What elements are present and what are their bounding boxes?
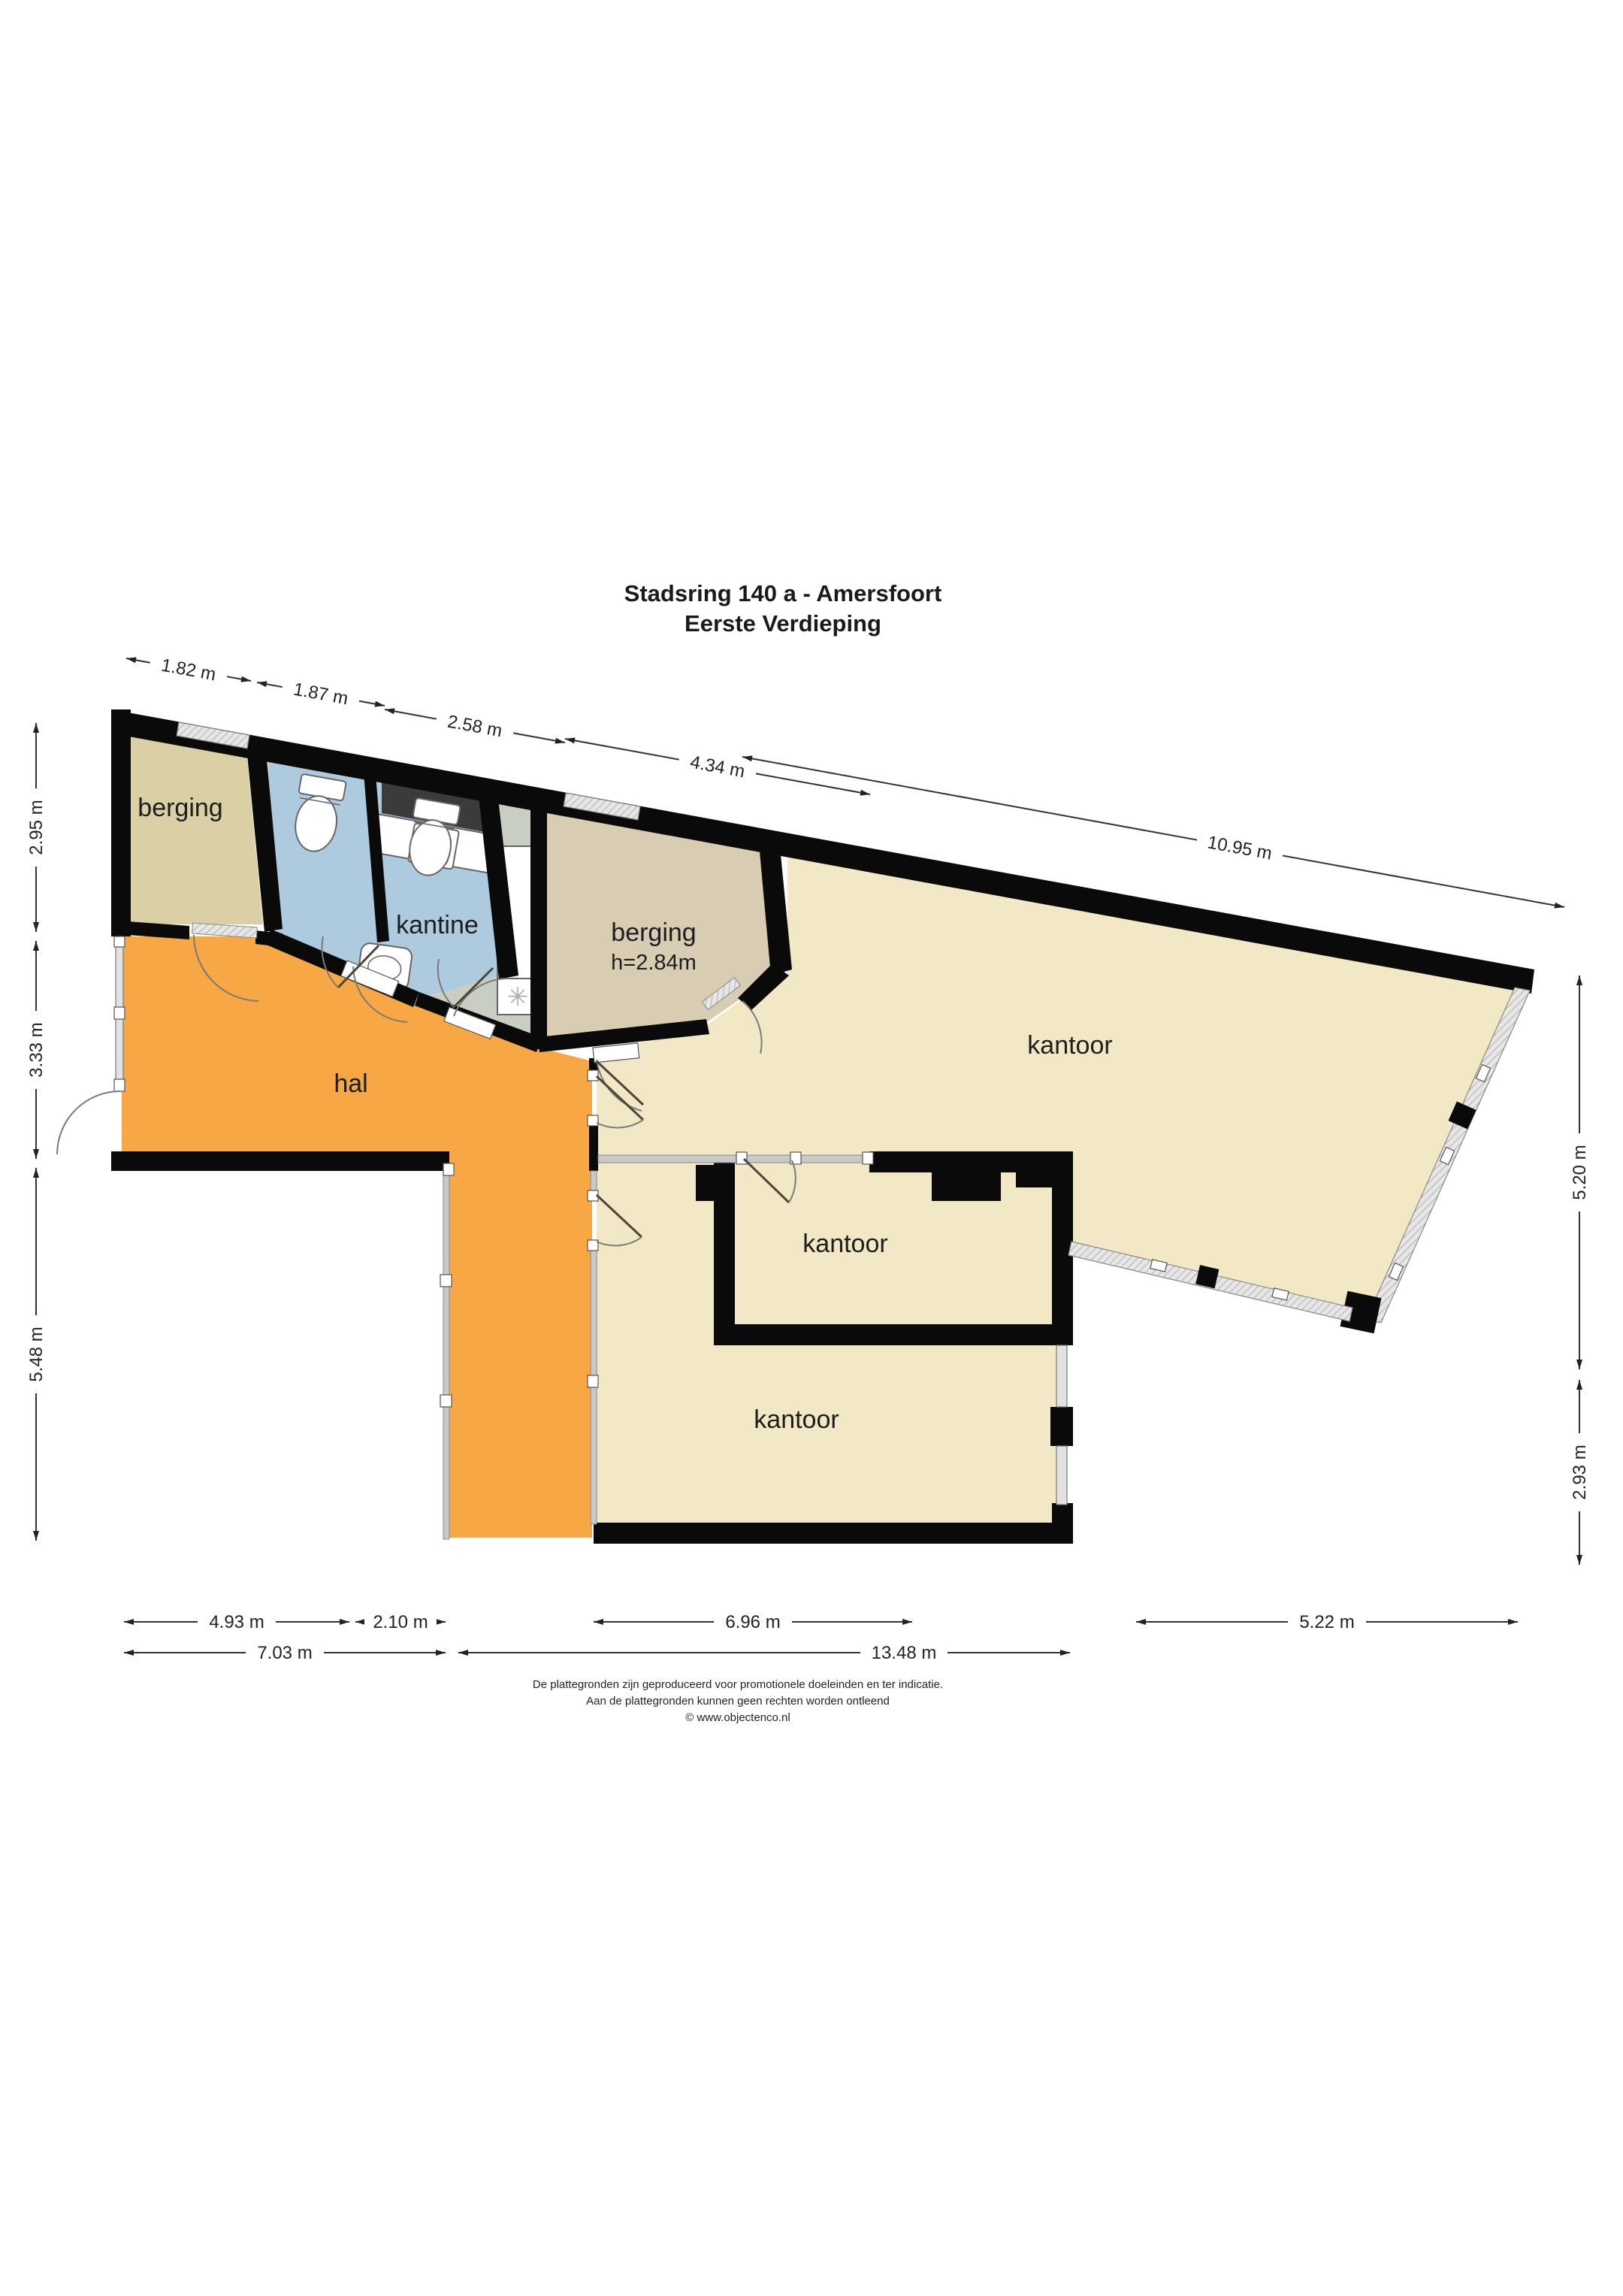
svg-text:5.48 m: 5.48 m <box>26 1326 47 1381</box>
dim-left-1: 2.95 m <box>25 788 47 867</box>
dim-bottom2-1: 7.03 m <box>246 1641 324 1664</box>
svg-text:3.33 m: 3.33 m <box>26 1022 47 1077</box>
label-hal: hal <box>334 1069 367 1098</box>
window-tick <box>440 1395 452 1407</box>
dim-top-3: 2.58 m <box>434 708 515 744</box>
label-kantoor-large: kantoor <box>1027 1031 1112 1060</box>
dim-top-1: 1.82 m <box>148 652 229 688</box>
dim-top-4: 4.34 m <box>677 749 758 785</box>
wall-hal-bottom <box>111 1151 449 1171</box>
dim-left-3: 5.48 m <box>25 1315 47 1393</box>
dim-right-2: 2.93 m <box>1568 1433 1591 1511</box>
wall-bottom <box>594 1523 1073 1544</box>
window-tick <box>736 1152 747 1164</box>
room-berging1 <box>129 731 263 924</box>
window-tick <box>114 1079 125 1091</box>
wall-left <box>111 709 131 936</box>
dim-left-2: 3.33 m <box>25 1011 47 1089</box>
window-tick <box>588 1115 598 1126</box>
label-berging2-height: h=2.84m <box>611 951 697 975</box>
freezer-snowflake-icon: ✳ <box>507 983 529 1012</box>
label-kantoor-mid: kantoor <box>802 1230 887 1258</box>
dim-top-5: 10.95 m <box>1195 829 1285 867</box>
window-tick <box>588 1070 598 1081</box>
header: Stadsring 140 a - Amersfoort Eerste Verd… <box>624 580 942 637</box>
window-tick <box>588 1375 598 1387</box>
dim-right-1: 5.20 m <box>1568 1133 1591 1212</box>
floorplan-page: ✳ <box>0 0 1623 2296</box>
wall-midkantoor-top <box>869 1151 1073 1172</box>
window-tick <box>588 1240 598 1251</box>
label-kantine: kantine <box>396 911 479 939</box>
dim-top-2: 1.87 m <box>280 676 361 712</box>
wall-bottom-corner <box>1052 1503 1073 1544</box>
dim-bottom1-3: 6.96 m <box>714 1611 792 1633</box>
svg-text:2.93 m: 2.93 m <box>1570 1444 1590 1499</box>
wall-midkantoor-bottom <box>714 1324 1073 1345</box>
svg-text:2.10 m: 2.10 m <box>373 1612 428 1632</box>
svg-text:4.93 m: 4.93 m <box>209 1612 264 1632</box>
wall-midkantoor-step1 <box>932 1172 1001 1201</box>
svg-text:13.48 m: 13.48 m <box>872 1643 937 1663</box>
window-tick <box>863 1152 873 1164</box>
svg-text:5.20 m: 5.20 m <box>1570 1145 1590 1199</box>
window-tick <box>114 1007 125 1019</box>
window-tick <box>114 936 125 947</box>
label-berging1: berging <box>138 794 222 822</box>
dim-bottom1-4: 5.22 m <box>1288 1611 1366 1633</box>
footer: De plattegronden zijn geproduceerd voor … <box>533 1678 943 1724</box>
dim-bottom1-2: 2.10 m <box>364 1611 437 1633</box>
svg-text:2.95 m: 2.95 m <box>26 800 47 855</box>
footer-line3: © www.objectenco.nl <box>685 1711 790 1724</box>
wall-rightwindow-mullion <box>1050 1407 1073 1446</box>
window-right-1 <box>1056 1345 1067 1407</box>
partition-corridor-black2 <box>589 1124 598 1171</box>
plan-title-line2: Eerste Verdieping <box>685 610 881 637</box>
plan-title-line1: Stadsring 140 a - Amersfoort <box>624 580 942 607</box>
berging1-door-leaf <box>192 923 258 938</box>
dim-bottom2-2: 13.48 m <box>860 1641 948 1664</box>
svg-text:5.22 m: 5.22 m <box>1299 1612 1354 1632</box>
label-berging2: berging <box>611 918 696 947</box>
svg-text:6.96 m: 6.96 m <box>725 1612 780 1632</box>
glass-corridor-left <box>443 1171 449 1539</box>
wall-cap <box>443 1163 454 1175</box>
entrance-door-arc <box>57 1091 120 1154</box>
wall-midkantoor-corner <box>696 1165 735 1201</box>
dim-bottom1-1: 4.93 m <box>198 1611 276 1633</box>
window-tick <box>440 1275 452 1287</box>
partition-midkantoor-top <box>598 1155 870 1163</box>
window-right-2 <box>1056 1446 1067 1505</box>
wall-berging2-left <box>530 806 547 1049</box>
svg-text:7.03 m: 7.03 m <box>257 1643 312 1663</box>
floorplan-canvas: ✳ <box>0 0 1623 2296</box>
label-kantoor-bottom: kantoor <box>754 1405 839 1434</box>
footer-line1: De plattegronden zijn geproduceerd voor … <box>533 1678 943 1691</box>
footer-line2: Aan de plattegronden kunnen geen rechten… <box>586 1695 890 1708</box>
